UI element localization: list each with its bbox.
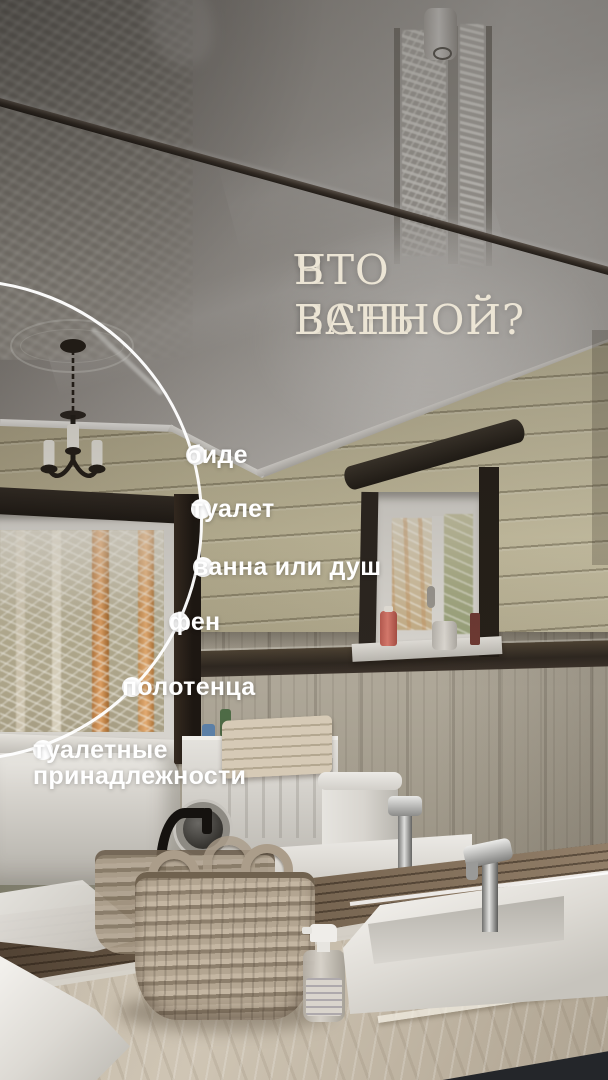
callout-label: туалетные принадлежности xyxy=(33,737,258,789)
chrome-faucet-spout xyxy=(466,862,478,880)
reflection-frame-edge xyxy=(486,26,492,266)
small-dark-bottle xyxy=(470,613,480,645)
reflection-frame-edge xyxy=(394,28,400,264)
callout-label: полотенца xyxy=(122,674,255,701)
mirror-faucet-head xyxy=(388,796,422,816)
right-window-handle xyxy=(427,586,435,608)
chrome-faucet xyxy=(482,860,498,932)
right-window-mullion xyxy=(432,516,444,632)
right-window-casing-right xyxy=(479,467,499,657)
callout-label: фен xyxy=(169,609,220,636)
right-window-pane-left xyxy=(392,518,432,630)
page-title-line2: В ВАННОЙ? xyxy=(294,245,525,345)
story-image: биде туалет ванна или душ фен полотенца … xyxy=(0,0,608,1080)
right-window-pane-right xyxy=(444,514,473,634)
wicker-basket xyxy=(135,872,315,1020)
callout-label: биде xyxy=(186,442,248,469)
ceiling-fixture-cylinder xyxy=(424,8,457,60)
red-bottle xyxy=(380,611,397,646)
wall-corner-shadow xyxy=(592,330,608,565)
soap-pump xyxy=(310,924,337,942)
callout-label: туалет xyxy=(191,496,275,523)
callout-label: ванна или душ xyxy=(193,554,381,581)
white-roll xyxy=(432,621,457,650)
soap-label xyxy=(306,978,342,1016)
